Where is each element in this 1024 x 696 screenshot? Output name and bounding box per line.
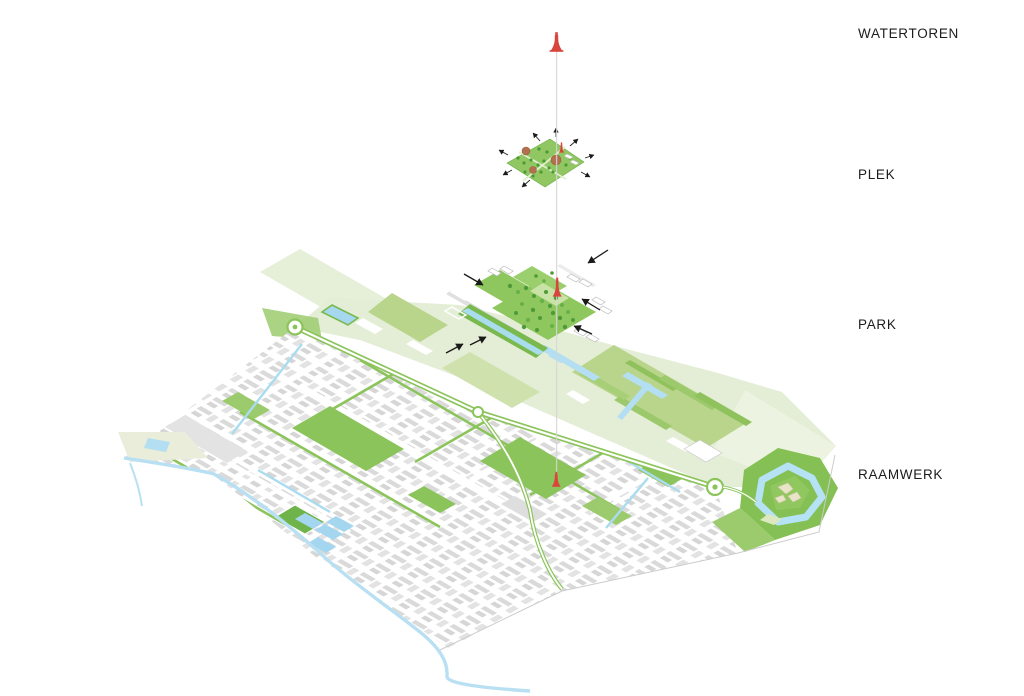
layer-label-watertoren: WATERTOREN	[858, 26, 959, 41]
layer-label-raamwerk: RAAMWERK	[858, 467, 943, 482]
axonometric-diagram-svg	[0, 0, 1024, 696]
diagram-canvas: WATERTOREN PLEK PARK RAAMWERK	[0, 0, 1024, 696]
layer-label-plek: PLEK	[858, 167, 895, 182]
layer-label-park: PARK	[858, 317, 897, 332]
plek-layer	[499, 128, 594, 187]
watertoren-icon	[550, 32, 564, 52]
